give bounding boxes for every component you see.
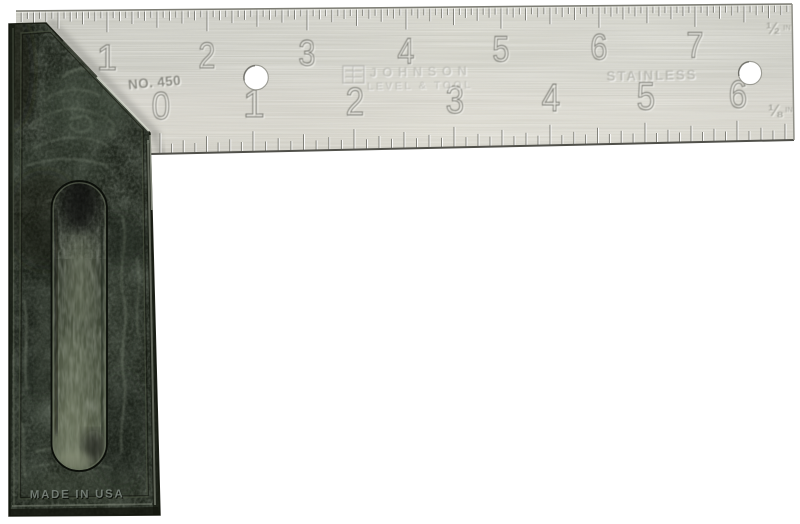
svg-text:MADE IN USA: MADE IN USA [30, 488, 125, 501]
svg-text:2: 2 [199, 35, 216, 76]
svg-text:LEVEL & TOOL: LEVEL & TOOL [367, 79, 473, 93]
svg-text:½: ½ [766, 19, 780, 38]
svg-text:JOHNSON: JOHNSON [369, 63, 472, 80]
svg-text:3: 3 [299, 33, 316, 74]
svg-text:5: 5 [493, 29, 510, 70]
svg-text:2: 2 [346, 81, 365, 124]
svg-text:⅛: ⅛ [768, 101, 784, 120]
svg-text:0: 0 [152, 85, 171, 128]
svg-text:IN: IN [785, 105, 793, 114]
svg-text:IN: IN [783, 23, 791, 32]
svg-text:7: 7 [687, 25, 704, 66]
svg-text:1: 1 [97, 37, 117, 78]
svg-text:6: 6 [591, 27, 608, 68]
svg-text:4: 4 [542, 77, 561, 120]
svg-text:STAINLESS: STAINLESS [606, 67, 697, 84]
